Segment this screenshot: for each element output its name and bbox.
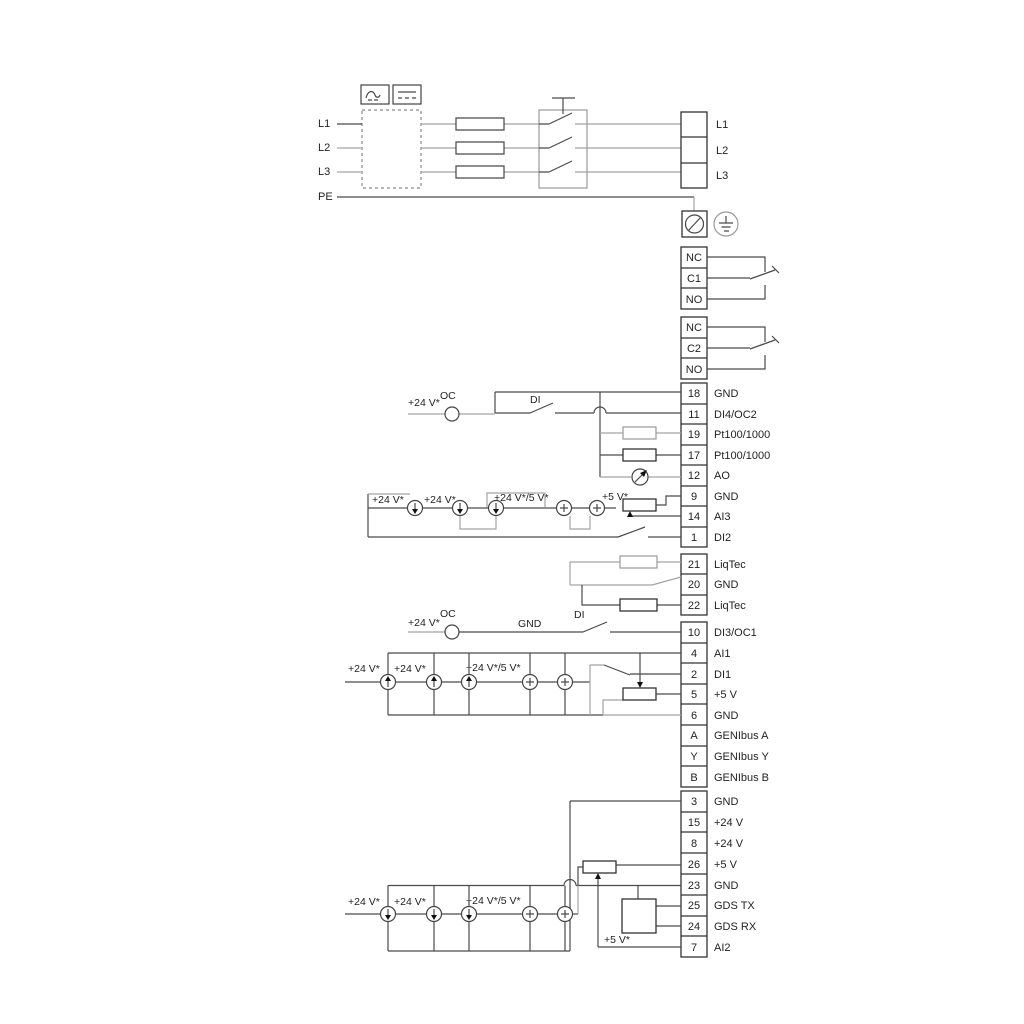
ai1-wiper-arrow (637, 682, 643, 688)
liqtec-section: 21 20 22 LiqTec GND LiqTec (570, 554, 746, 615)
terminal-label: AI2 (714, 942, 731, 954)
terminal-label: GENIbus B (714, 772, 769, 784)
open-collector-icon (445, 625, 459, 639)
terminal-number: 11 (688, 409, 699, 421)
terminal-label: +24 V (714, 817, 744, 829)
terminal-label: DI3/OC1 (714, 627, 757, 639)
relay2-no: NO (686, 364, 703, 376)
terminal-label: GENIbus A (714, 730, 769, 742)
di-label: DI (574, 609, 585, 621)
terminal-label: GND (714, 388, 739, 400)
terminal-number: 8 (691, 838, 697, 850)
v24-label: +24 V* (394, 896, 426, 908)
potentiometer-c (583, 861, 616, 873)
terminal-number: 26 (688, 859, 700, 871)
mains-out-label-l2: L2 (716, 145, 728, 157)
mains-out-label-l3: L3 (716, 170, 728, 182)
fuse-l3 (456, 166, 504, 178)
terminal-label: DI2 (714, 532, 731, 544)
earth-symbol-circle (714, 212, 738, 236)
potentiometer-a-wiper-arrow (627, 511, 633, 517)
terminal-label: GDS TX (714, 900, 755, 912)
v24-label: +24 V* (348, 663, 380, 675)
v24-label: +24 V* (408, 397, 440, 409)
terminal-number: 1 (691, 532, 697, 544)
terminal-label: +5 V (714, 689, 738, 701)
potentiometer-c-wiper-arrow (595, 873, 601, 879)
di3-wire-switch (459, 622, 681, 632)
potentiometer-a (623, 499, 656, 511)
v24-label: +24 V* (394, 663, 426, 675)
wire-l2-l3-in (337, 148, 362, 172)
terminal-number: 25 (688, 900, 700, 912)
relay2-contact-wires (707, 327, 779, 369)
relay2-nc: NC (686, 322, 702, 334)
terminal-label: GND (714, 796, 739, 808)
terminal-number: 15 (688, 817, 700, 829)
mains-section: L1 L2 L3 PE L1 L2 L3 (318, 85, 738, 237)
v24-label: +24 V* (372, 494, 404, 506)
oc-label: OC (440, 390, 456, 402)
open-collector-icon (445, 407, 459, 421)
terminal-label: Pt100/1000 (714, 429, 770, 441)
terminal-number: 18 (688, 388, 700, 400)
terminal-label: AI1 (714, 648, 731, 660)
wire-switch-to-terminals (575, 124, 681, 172)
fuse-l1 (456, 118, 504, 130)
terminal-label: AO (714, 470, 730, 482)
mains-label-l1: L1 (318, 118, 330, 130)
wiring-diagram-page: { "mains_in": { "l1": "L1", "l2": "L2", … (0, 0, 1024, 1024)
terminal-label: DI1 (714, 669, 731, 681)
terminal-number: 6 (691, 710, 697, 722)
di2-wire-switch (368, 527, 681, 537)
v24-label: +24 V* (424, 494, 456, 506)
terminal-number: 4 (691, 648, 697, 660)
terminal-label: GND (714, 710, 739, 722)
pt100-resistor-b (623, 449, 656, 461)
schematic-canvas: L1 L2 L3 PE L1 L2 L3 NC C1 NO (0, 0, 1024, 1024)
v24-5-label: +24 V*/5 V* (494, 492, 549, 504)
terminal-number: 10 (688, 627, 700, 639)
v24-label: +24 V* (348, 896, 380, 908)
terminal-label: Pt100/1000 (714, 450, 770, 462)
terminal-label: GDS RX (714, 921, 757, 933)
relay2-section: NC C2 NO (681, 317, 779, 379)
di1-switch-wire (604, 665, 681, 675)
relay1-nc: NC (686, 252, 702, 264)
terminal-label: AI3 (714, 511, 731, 523)
current-source-up-icon (381, 675, 477, 690)
fuse-l2 (456, 142, 504, 154)
terminal-number: 9 (691, 491, 697, 503)
terminal-label: DI4/OC2 (714, 409, 757, 421)
relay1-contact-wires (707, 257, 779, 299)
liqtec-sensor-b (620, 599, 657, 611)
terminal-number: 3 (691, 796, 697, 808)
terminal-number: 22 (688, 600, 700, 612)
relay1-c: C1 (687, 273, 701, 285)
oc-label: OC (440, 608, 456, 620)
terminal-number: 20 (688, 579, 700, 591)
di-label: DI (530, 394, 541, 406)
current-source-down-icon (408, 501, 504, 516)
mains-out-terminal-block (681, 112, 707, 188)
terminal-label: LiqTec (714, 600, 746, 612)
groupA-main-wires (368, 494, 616, 537)
terminal-label: LiqTec (714, 559, 746, 571)
mains-label-pe: PE (318, 191, 333, 203)
mains-label-l2: L2 (318, 142, 330, 154)
relay1-section: NC C1 NO (681, 247, 779, 309)
io-group3-section: 3 15 8 26 23 25 24 7 GND +24 V +24 V +5 … (345, 791, 757, 957)
current-source-down-icon (381, 907, 477, 922)
io-group1-section: 18 11 19 17 12 9 14 1 GND DI4/OC2 Pt100/… (368, 383, 770, 547)
rcd-type-dc-symbol (393, 85, 421, 104)
terminal-number: 5 (691, 689, 697, 701)
mains-label-l3: L3 (318, 166, 330, 178)
relay2-c: C2 (687, 343, 701, 355)
terminal-number: 12 (688, 470, 700, 482)
mains-switch-box (539, 110, 587, 188)
terminal-number: 23 (688, 880, 700, 892)
v24-5-label: +24 V*/5 V* (466, 895, 521, 907)
terminal-number: 14 (688, 511, 700, 523)
terminal-label: GND (714, 491, 739, 503)
terminal-number: B (690, 772, 697, 784)
terminal-label: GENIbus Y (714, 751, 769, 763)
v24-label: +24 V* (408, 617, 440, 629)
terminal-number: Y (690, 751, 698, 763)
v5-label: +5 V* (604, 934, 630, 946)
mains-out-label-l1: L1 (716, 119, 728, 131)
v24-5-label: +24 V*/5 V* (466, 662, 521, 674)
terminal-label: GND (714, 579, 739, 591)
terminal-number: 7 (691, 942, 697, 954)
potentiometer-b (623, 688, 656, 700)
gds-sensor-box (622, 899, 656, 933)
terminal-number: A (690, 730, 698, 742)
terminal-number: 19 (688, 429, 700, 441)
terminal-label: +24 V (714, 838, 744, 850)
gnd-label: GND (518, 618, 542, 630)
rcd-dashed-box (362, 110, 421, 188)
liqtec-sensor-a (620, 556, 657, 568)
terminal-number: 17 (688, 450, 700, 462)
terminal-label: +5 V (714, 859, 738, 871)
relay1-no: NO (686, 294, 703, 306)
terminal-number: 21 (688, 559, 700, 571)
io-group2-section: 10 4 2 5 6 A Y B DI3/OC1 AI1 DI1 +5 V GN… (345, 608, 769, 787)
pt100-resistor-a (623, 427, 656, 439)
terminal-label: GND (714, 880, 739, 892)
terminal-number: 2 (691, 669, 697, 681)
terminal-number: 24 (688, 921, 700, 933)
